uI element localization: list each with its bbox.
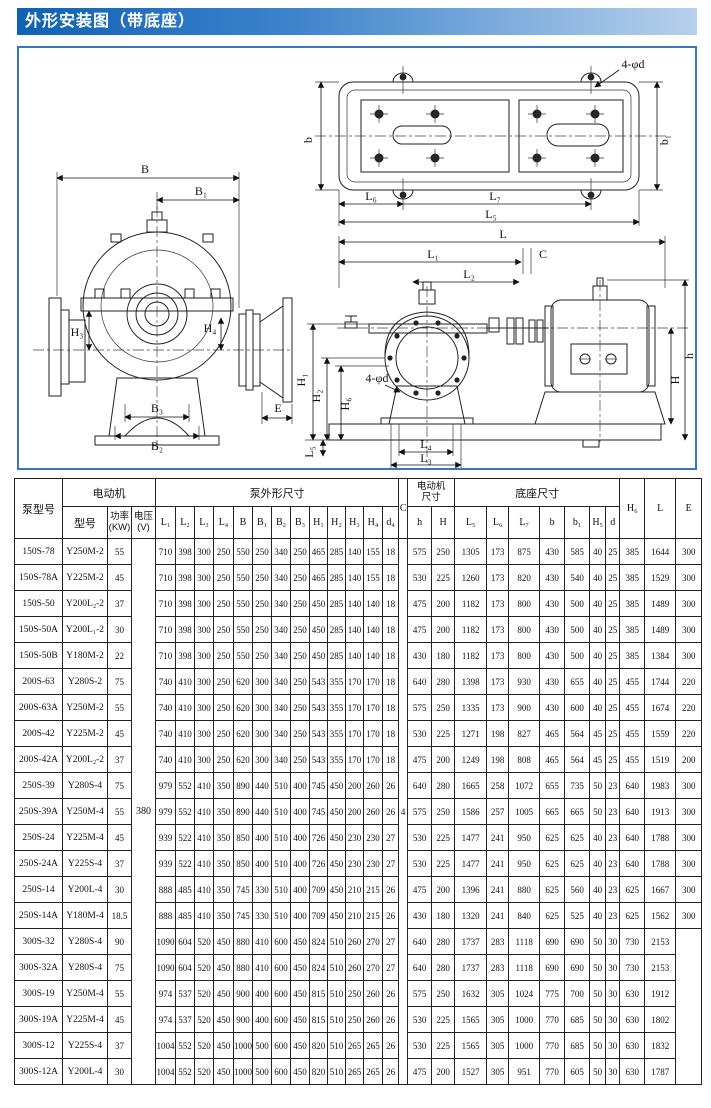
h6-cell: 640 — [620, 773, 645, 799]
dim-cell: 300 — [253, 747, 272, 773]
dim-cell: 510 — [272, 825, 291, 851]
dim-cell: 140 — [346, 617, 364, 643]
dim-cell: 745 — [310, 773, 328, 799]
dim-cell: 600 — [272, 981, 291, 1007]
base-dim-cell: 40 — [590, 903, 606, 929]
table-row: 150S-78Y250M-255380710398300250550250340… — [15, 539, 702, 565]
base-dim-cell: 1665 — [455, 773, 487, 799]
dim-cell: 300 — [195, 669, 214, 695]
base-dim-cell: 1632 — [455, 981, 487, 1007]
dim-cell: 300 — [195, 617, 214, 643]
base-dim-cell: 50 — [590, 1033, 606, 1059]
dim-cell: 18 — [383, 643, 399, 669]
base-dim-cell: 1305 — [455, 539, 487, 565]
dim-label-H1: H₁ — [294, 374, 308, 387]
base-dim-cell: 500 — [565, 617, 590, 643]
dim-cell: 27 — [383, 825, 399, 851]
dim-cell: 250 — [253, 591, 272, 617]
dim-cell: 709 — [310, 903, 328, 929]
dim-cell: 250 — [291, 643, 310, 669]
col-l: L — [645, 479, 676, 539]
power-cell: 45 — [108, 721, 132, 747]
motor-dim-cell: 200 — [432, 1059, 455, 1085]
table-row: 300S-12Y225S-437100455252045010005006004… — [15, 1033, 702, 1059]
dim-cell: 250 — [214, 591, 234, 617]
base-dim-cell: 25 — [606, 669, 620, 695]
dim-cell: 18 — [383, 539, 399, 565]
dim-cell: 726 — [310, 825, 328, 851]
motor-dim-cell: 280 — [432, 773, 455, 799]
dim-label-E: E — [274, 401, 281, 415]
motor-model-cell: Y225M-2 — [63, 721, 108, 747]
base-dim-cell: 770 — [540, 1059, 565, 1085]
dim-cell: 543 — [310, 695, 328, 721]
dim-cell: 740 — [156, 721, 176, 747]
col-dim-L3: L₃ — [195, 507, 214, 539]
e-cell: 200 — [676, 747, 702, 773]
motor-model-cell: Y180M-4 — [63, 903, 108, 929]
l-cell: 1562 — [645, 903, 676, 929]
base-dim-cell: 305 — [487, 1007, 509, 1033]
dim-cell: 155 — [364, 539, 383, 565]
dim-cell: 550 — [234, 617, 253, 643]
base-dim-cell: 50 — [590, 929, 606, 955]
motor-model-cell: Y280S-4 — [63, 955, 108, 981]
base-dim-cell: 23 — [606, 799, 620, 825]
base-dim-cell: 173 — [487, 695, 509, 721]
col-dim-h: h — [408, 507, 432, 539]
base-dim-cell: 30 — [606, 1007, 620, 1033]
dim-cell: 250 — [214, 695, 234, 721]
dim-cell: 1090 — [156, 929, 176, 955]
base-dim-cell: 1565 — [455, 1033, 487, 1059]
motor-dim-cell: 475 — [408, 877, 432, 903]
base-dim-cell: 25 — [606, 721, 620, 747]
dim-cell: 537 — [176, 981, 195, 1007]
dim-cell: 410 — [176, 695, 195, 721]
base-dim-cell: 1260 — [455, 565, 487, 591]
dim-cell: 709 — [310, 877, 328, 903]
base-dim-cell: 50 — [590, 981, 606, 1007]
dim-cell: 18 — [383, 591, 399, 617]
table-row: 150S-50Y200L₂-23771039830025055025034025… — [15, 591, 702, 617]
e-cell: 220 — [676, 669, 702, 695]
dim-cell: 400 — [291, 903, 310, 929]
dim-cell: 450 — [310, 643, 328, 669]
base-dim-cell: 40 — [590, 695, 606, 721]
base-dim-cell: 820 — [509, 565, 540, 591]
dim-cell: 230 — [346, 851, 364, 877]
dim-label-B1: B₁ — [195, 184, 207, 198]
base-dim-cell: 808 — [509, 747, 540, 773]
dim-cell: 1004 — [156, 1033, 176, 1059]
base-dim-cell: 430 — [540, 695, 565, 721]
dim-cell: 300 — [195, 721, 214, 747]
dim-cell: 285 — [328, 591, 346, 617]
pump-model-cell: 200S-42 — [15, 721, 63, 747]
base-dim-cell: 1396 — [455, 877, 487, 903]
dim-cell: 974 — [156, 1007, 176, 1033]
h6-cell: 385 — [620, 617, 645, 643]
motor-dim-cell: 280 — [432, 929, 455, 955]
motor-dim-cell: 200 — [432, 617, 455, 643]
motor-dim-cell: 530 — [408, 721, 432, 747]
dim-cell: 740 — [156, 669, 176, 695]
dim-cell: 710 — [156, 591, 176, 617]
dim-cell: 300 — [195, 747, 214, 773]
motor-model-cell: Y225S-4 — [63, 1033, 108, 1059]
dim-cell: 890 — [234, 799, 253, 825]
pump-model-cell: 200S-63A — [15, 695, 63, 721]
dim-cell: 265 — [346, 1033, 364, 1059]
base-dim-cell: 241 — [487, 851, 509, 877]
pump-model-cell: 250S-24A — [15, 851, 63, 877]
dim-cell: 260 — [346, 955, 364, 981]
dim-cell: 745 — [234, 903, 253, 929]
dim-cell: 410 — [195, 799, 214, 825]
table-row: 200S-63AY250M-25574041030025062030034025… — [15, 695, 702, 721]
base-dim-cell: 305 — [487, 981, 509, 1007]
dim-cell: 450 — [328, 825, 346, 851]
dim-cell: 450 — [291, 1059, 310, 1085]
motor-dim-cell: 200 — [432, 591, 455, 617]
pump-model-cell: 300S-12 — [15, 1033, 63, 1059]
base-dim-cell: 23 — [606, 851, 620, 877]
l-cell: 1788 — [645, 825, 676, 851]
dim-cell: 726 — [310, 851, 328, 877]
base-dim-cell: 700 — [565, 981, 590, 1007]
power-cell: 30 — [108, 617, 132, 643]
base-dim-cell: 1737 — [455, 929, 487, 955]
l-cell: 1913 — [645, 799, 676, 825]
dim-cell: 410 — [195, 851, 214, 877]
dim-cell: 620 — [234, 721, 253, 747]
dim-cell: 740 — [156, 695, 176, 721]
dim-cell: 200 — [346, 773, 364, 799]
base-dim-cell: 173 — [487, 565, 509, 591]
dim-cell: 18 — [383, 669, 399, 695]
dim-cell: 270 — [364, 929, 383, 955]
motor-dim-cell: 200 — [432, 747, 455, 773]
pump-model-cell: 300S-12A — [15, 1059, 63, 1085]
dim-cell: 265 — [364, 1059, 383, 1085]
dim-label-B3: B₃ — [151, 401, 163, 415]
dim-cell: 230 — [364, 851, 383, 877]
e-cell: 300 — [676, 851, 702, 877]
base-dim-cell: 50 — [590, 773, 606, 799]
col-dim-d4: d₄ — [383, 507, 399, 539]
base-dim-cell: 690 — [565, 955, 590, 981]
motor-dim-cell: 475 — [408, 617, 432, 643]
dim-cell: 745 — [234, 877, 253, 903]
dim-cell: 170 — [346, 669, 364, 695]
col-e: E — [676, 479, 702, 539]
base-dim-cell: 40 — [590, 539, 606, 565]
motor-dim-cell: 250 — [432, 981, 455, 1007]
power-cell: 30 — [108, 877, 132, 903]
pump-model-cell: 200S-42A — [15, 747, 63, 773]
l-cell: 1644 — [645, 539, 676, 565]
base-dim-cell: 40 — [590, 565, 606, 591]
base-dim-cell: 173 — [487, 669, 509, 695]
dim-cell: 410 — [176, 721, 195, 747]
motor-dim-cell: 575 — [408, 799, 432, 825]
motor-model-cell: Y280S-2 — [63, 669, 108, 695]
dim-cell: 355 — [328, 695, 346, 721]
dim-cell: 620 — [234, 669, 253, 695]
dim-cell: 410 — [176, 669, 195, 695]
dim-label-L1: L₁ — [427, 247, 439, 261]
dim-cell: 230 — [346, 825, 364, 851]
dim-cell: 450 — [214, 1059, 234, 1085]
dim-cell: 400 — [291, 799, 310, 825]
dim-label-b1: b₁ — [657, 135, 671, 145]
dim-cell: 522 — [176, 851, 195, 877]
base-dim-cell: 685 — [565, 1033, 590, 1059]
dim-cell: 552 — [176, 1059, 195, 1085]
dim-cell: 888 — [156, 877, 176, 903]
dim-cell: 398 — [176, 591, 195, 617]
dim-cell: 604 — [176, 955, 195, 981]
base-dim-cell: 800 — [509, 591, 540, 617]
power-cell: 75 — [108, 773, 132, 799]
dim-cell: 450 — [328, 877, 346, 903]
motor-dim-cell: 250 — [432, 799, 455, 825]
motor-dim-cell: 180 — [432, 903, 455, 929]
dim-cell: 250 — [214, 539, 234, 565]
dim-cell: 250 — [253, 565, 272, 591]
dim-cell: 450 — [291, 1007, 310, 1033]
dim-cell: 140 — [346, 565, 364, 591]
motor-dim-cell: 250 — [432, 695, 455, 721]
col-c: C — [399, 479, 408, 539]
dim-cell: 170 — [364, 695, 383, 721]
base-dim-cell: 23 — [606, 773, 620, 799]
base-dim-cell: 564 — [565, 721, 590, 747]
pump-model-cell: 150S-78A — [15, 565, 63, 591]
motor-model-cell: Y200L₂-2 — [63, 591, 108, 617]
col-group-motor: 电动机 — [63, 479, 156, 507]
dim-cell: 880 — [234, 929, 253, 955]
dim-cell: 600 — [272, 1059, 291, 1085]
motor-model-cell: Y280S-4 — [63, 773, 108, 799]
dim-cell: 300 — [253, 721, 272, 747]
dim-label-H: H — [668, 375, 682, 384]
table-header: 泵型号 电动机 泵外形尺寸 C 电动机 尺寸 底座尺寸 H₆ L E 型号 功率… — [15, 479, 702, 539]
motor-dim-cell: 475 — [408, 747, 432, 773]
base-dim-cell: 775 — [540, 981, 565, 1007]
base-dim-cell: 40 — [590, 591, 606, 617]
base-dim-cell: 173 — [487, 591, 509, 617]
base-dim-cell: 950 — [509, 825, 540, 851]
dim-cell: 979 — [156, 799, 176, 825]
base-dim-cell: 23 — [606, 903, 620, 929]
dim-cell: 350 — [214, 877, 234, 903]
dim-cell: 340 — [272, 539, 291, 565]
base-dim-cell: 1182 — [455, 591, 487, 617]
dim-cell: 520 — [195, 929, 214, 955]
dim-cell: 215 — [364, 877, 383, 903]
dim-cell: 465 — [310, 565, 328, 591]
table-row: 250S-14Y200L-430888485410350745330510400… — [15, 877, 702, 903]
dim-cell: 200 — [346, 799, 364, 825]
dim-cell: 210 — [346, 877, 364, 903]
table-row: 250S-24Y225M-445939522410350850400510400… — [15, 825, 702, 851]
base-dim-cell: 770 — [540, 1033, 565, 1059]
base-dim-cell: 880 — [509, 877, 540, 903]
l-cell: 1489 — [645, 617, 676, 643]
base-dim-cell: 430 — [540, 591, 565, 617]
dim-cell: 300 — [195, 695, 214, 721]
base-dim-cell: 800 — [509, 643, 540, 669]
h6-cell: 730 — [620, 929, 645, 955]
pump-model-cell: 250S-24 — [15, 825, 63, 851]
dim-label-bolt-holes: 4-φd — [366, 371, 389, 385]
dim-cell: 410 — [253, 929, 272, 955]
l-cell: 1802 — [645, 1007, 676, 1033]
col-dim-H3: H₃ — [346, 507, 364, 539]
table-row: 300S-12AY200L-43010045525204501000500600… — [15, 1059, 702, 1085]
col-dim-H4: H₄ — [364, 507, 383, 539]
dim-cell: 600 — [272, 929, 291, 955]
base-dim-cell: 1005 — [509, 799, 540, 825]
dim-cell: 974 — [156, 981, 176, 1007]
base-dim-cell: 30 — [606, 955, 620, 981]
pump-model-cell: 150S-50B — [15, 643, 63, 669]
table-row: 250S-14AY180M-418.5888485410350745330510… — [15, 903, 702, 929]
base-dim-cell: 625 — [540, 877, 565, 903]
h6-cell: 385 — [620, 539, 645, 565]
dim-cell: 552 — [176, 799, 195, 825]
dim-cell: 400 — [291, 877, 310, 903]
dim-cell: 550 — [234, 539, 253, 565]
dim-cell: 520 — [195, 981, 214, 1007]
motor-dim-cell: 640 — [408, 773, 432, 799]
dim-cell: 340 — [272, 591, 291, 617]
base-dim-cell: 1182 — [455, 643, 487, 669]
dim-cell: 1000 — [234, 1059, 253, 1085]
dim-cell: 400 — [291, 851, 310, 877]
l-cell: 1788 — [645, 851, 676, 877]
dim-cell: 300 — [195, 539, 214, 565]
base-dim-cell: 827 — [509, 721, 540, 747]
base-dim-cell: 655 — [540, 773, 565, 799]
base-dim-cell: 665 — [565, 799, 590, 825]
dim-cell: 230 — [364, 825, 383, 851]
table-row: 300S-32AY280S-47510906045204508804106004… — [15, 955, 702, 981]
dim-label-C: C — [539, 247, 547, 261]
power-cell: 75 — [108, 955, 132, 981]
dim-cell: 26 — [383, 981, 399, 1007]
base-dim-cell: 500 — [565, 643, 590, 669]
motor-model-cell: Y180M-2 — [63, 643, 108, 669]
col-power: 功率 (KW) — [108, 507, 132, 539]
base-dim-cell: 25 — [606, 617, 620, 643]
dim-cell: 500 — [253, 1033, 272, 1059]
dim-cell: 485 — [176, 903, 195, 929]
dim-cell: 250 — [291, 539, 310, 565]
dim-cell: 450 — [310, 591, 328, 617]
base-dim-cell: 735 — [565, 773, 590, 799]
base-dim-cell: 40 — [590, 643, 606, 669]
dim-cell: 450 — [214, 955, 234, 981]
motor-model-cell: Y225M-4 — [63, 1007, 108, 1033]
motor-dim-cell: 200 — [432, 877, 455, 903]
h6-cell: 730 — [620, 955, 645, 981]
dim-cell: 250 — [214, 747, 234, 773]
h6-cell: 385 — [620, 591, 645, 617]
dim-cell: 250 — [214, 617, 234, 643]
power-cell: 45 — [108, 565, 132, 591]
dim-cell: 170 — [346, 747, 364, 773]
base-dim-cell: 241 — [487, 877, 509, 903]
table-row: 300S-32Y280S-490109060452045088041060045… — [15, 929, 702, 955]
dim-cell: 710 — [156, 565, 176, 591]
base-dim-cell: 690 — [540, 955, 565, 981]
base-dim-cell: 430 — [540, 539, 565, 565]
h6-cell: 630 — [620, 1059, 645, 1085]
dim-cell: 260 — [364, 981, 383, 1007]
dim-cell: 510 — [328, 1007, 346, 1033]
base-dim-cell: 840 — [509, 903, 540, 929]
motor-dim-cell: 225 — [432, 825, 455, 851]
motor-model-cell: Y200L-4 — [63, 877, 108, 903]
col-dim-B3: B₃ — [291, 507, 310, 539]
pump-model-cell: 250S-39 — [15, 773, 63, 799]
dim-cell: 440 — [253, 773, 272, 799]
e-cell: 300 — [676, 591, 702, 617]
dim-cell: 850 — [234, 851, 253, 877]
base-dim-cell: 23 — [606, 877, 620, 903]
dim-cell: 140 — [364, 643, 383, 669]
dim-cell: 140 — [346, 539, 364, 565]
base-dim-cell: 25 — [606, 695, 620, 721]
dim-label-L5: L₅ — [485, 207, 497, 221]
dim-cell: 250 — [346, 981, 364, 1007]
h6-cell: 630 — [620, 1007, 645, 1033]
dim-label-H2: H₂ — [309, 390, 323, 403]
dim-cell: 510 — [328, 1033, 346, 1059]
dim-cell: 815 — [310, 981, 328, 1007]
col-dim-H5: H₅ — [590, 507, 606, 539]
dim-cell: 18 — [383, 747, 399, 773]
base-dim-cell: 430 — [540, 643, 565, 669]
col-dim-L7: L₇ — [509, 507, 540, 539]
power-cell: 75 — [108, 669, 132, 695]
power-cell: 22 — [108, 643, 132, 669]
table-row: 200S-42Y225M-245740410300250620300340250… — [15, 721, 702, 747]
dim-cell: 330 — [253, 877, 272, 903]
dim-cell: 510 — [328, 955, 346, 981]
base-dim-cell: 690 — [565, 929, 590, 955]
h6-cell: 640 — [620, 799, 645, 825]
l-cell: 1667 — [645, 877, 676, 903]
col-motor-model: 型号 — [63, 507, 108, 539]
dim-cell: 939 — [156, 851, 176, 877]
dim-cell: 250 — [291, 565, 310, 591]
dim-label-L2: L₂ — [463, 267, 475, 281]
motor-dim-cell: 180 — [432, 643, 455, 669]
base-dim-cell: 305 — [487, 1059, 509, 1085]
dim-cell: 260 — [364, 799, 383, 825]
dim-label-b: b — [301, 137, 315, 143]
dim-label-L4: L₄ — [420, 437, 432, 451]
motor-model-cell: Y200L-4 — [63, 1059, 108, 1085]
dim-cell: 410 — [253, 955, 272, 981]
motor-dim-cell: 640 — [408, 669, 432, 695]
dim-cell: 350 — [214, 851, 234, 877]
baseplate-plan-drawing: 4-φd b b₁ L₆ L₇ L₅ — [295, 54, 695, 230]
